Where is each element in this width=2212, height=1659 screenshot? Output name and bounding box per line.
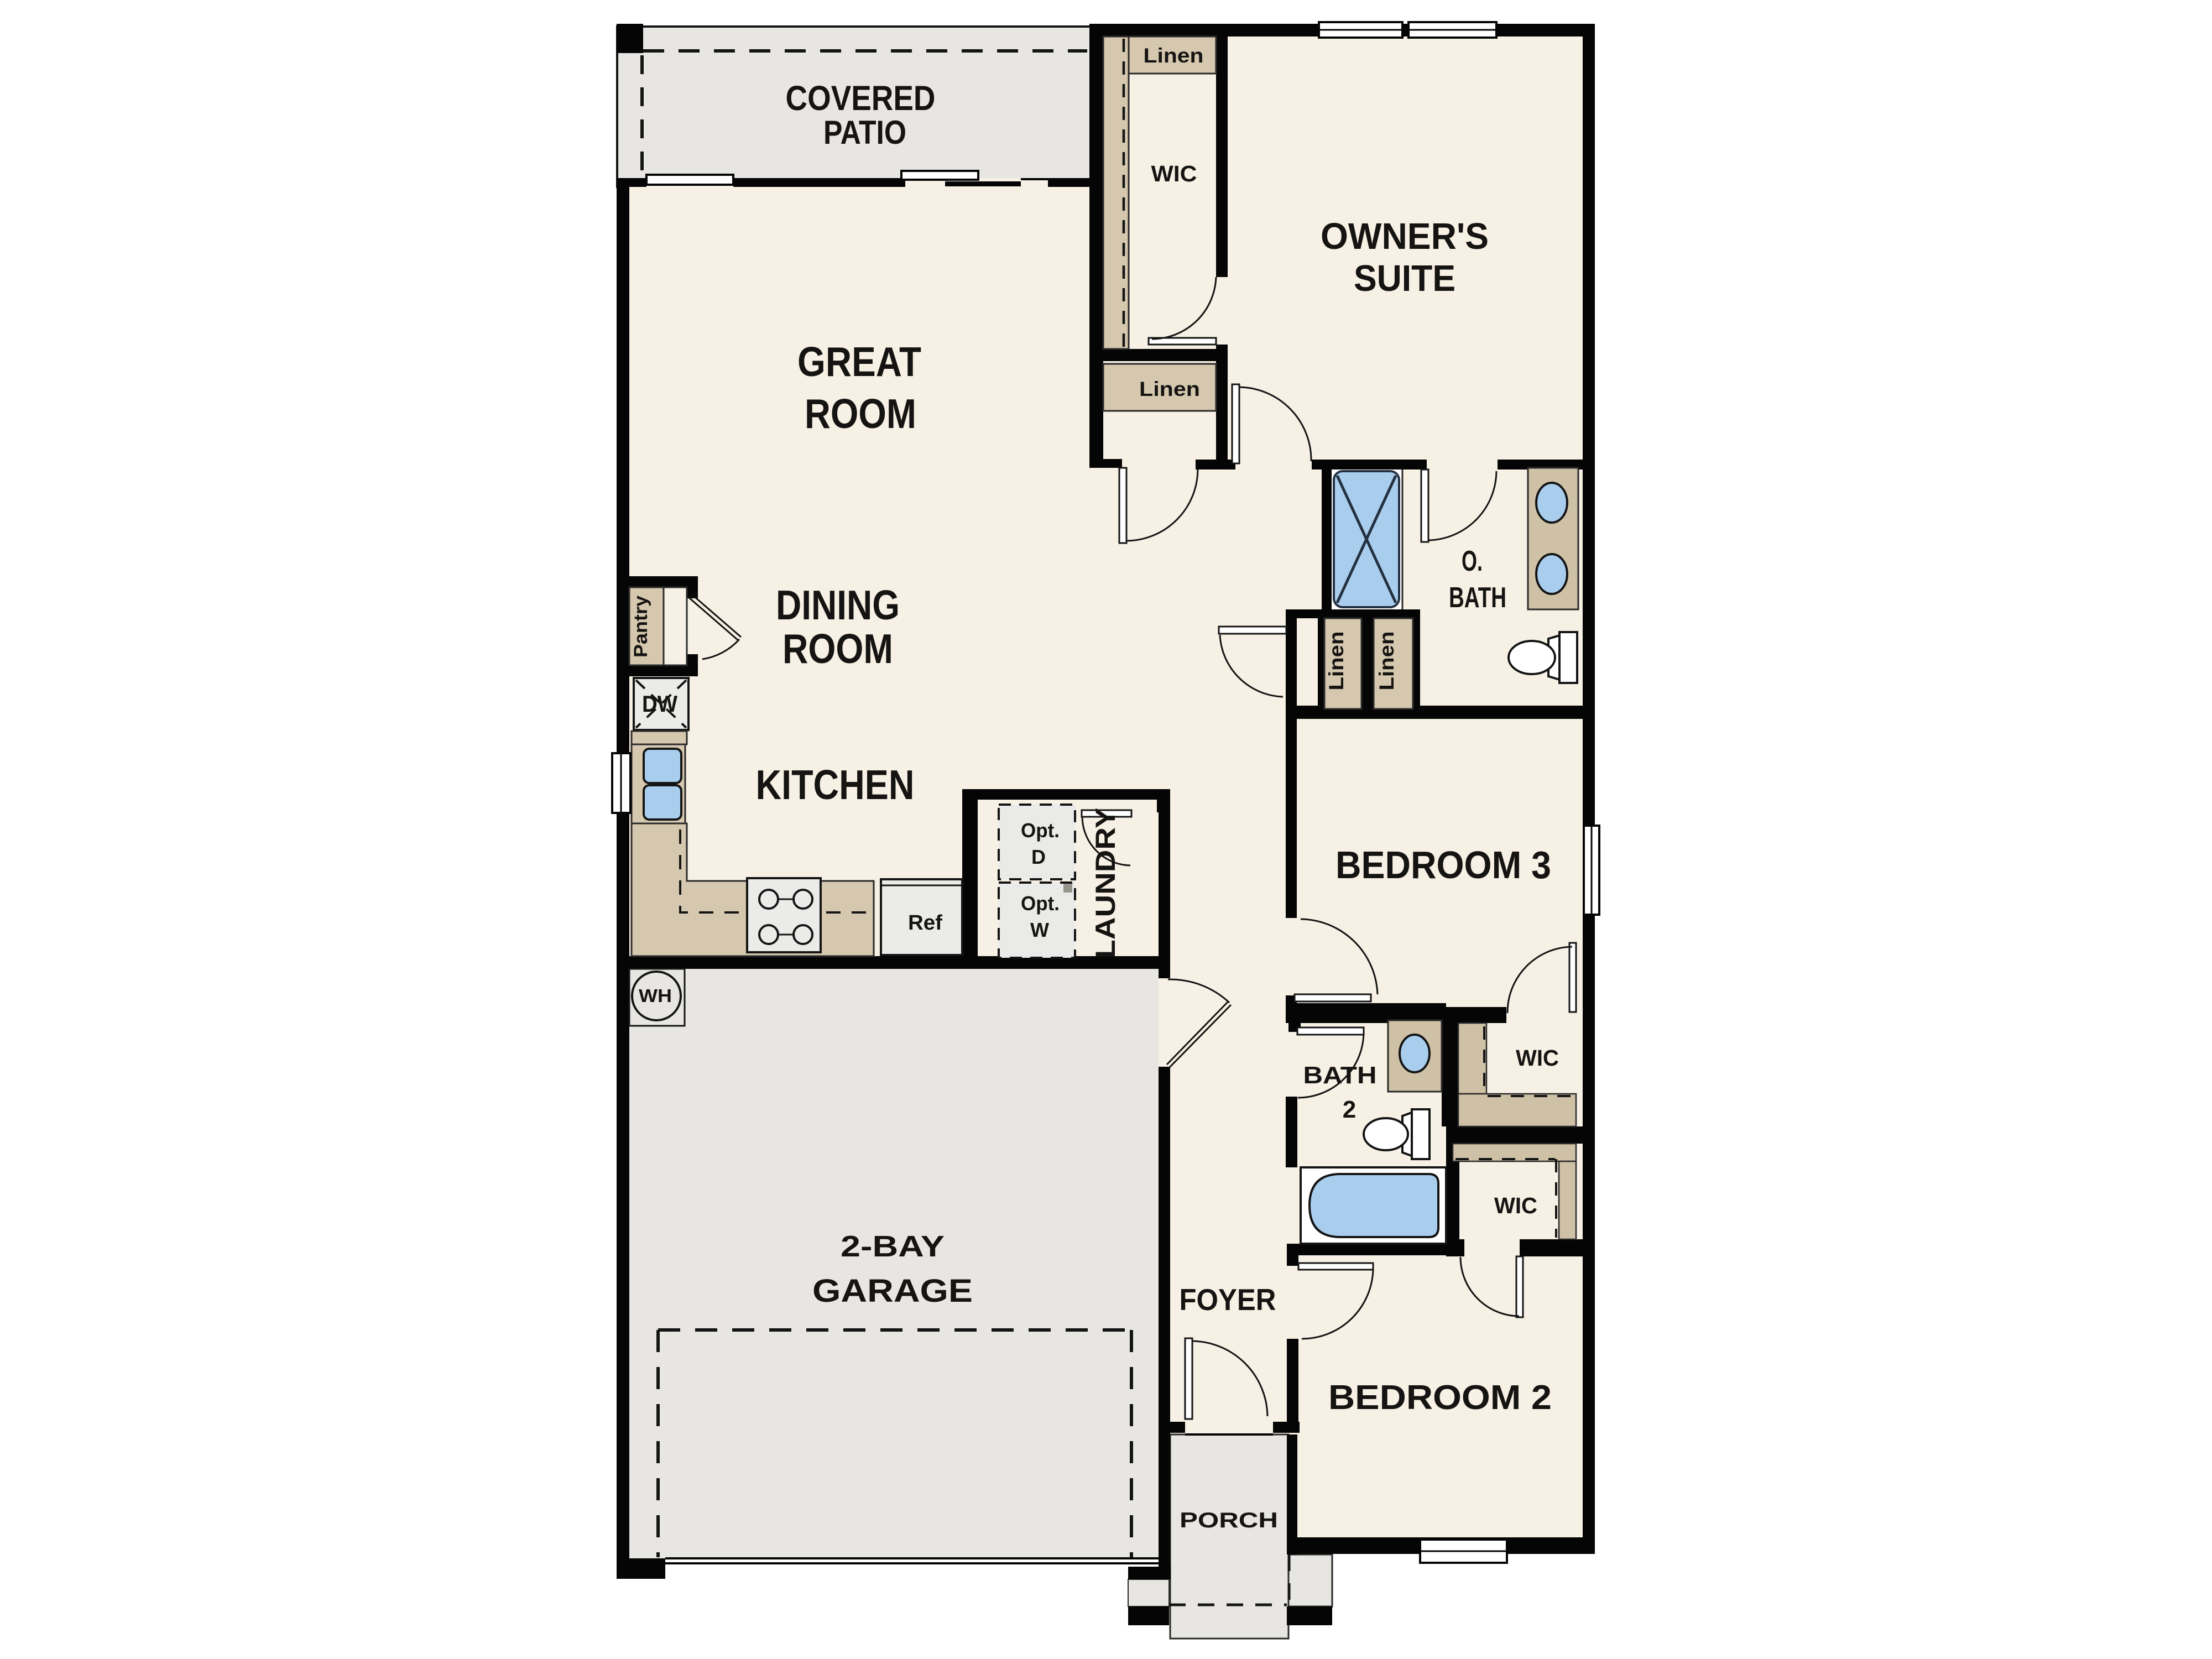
svg-text:BEDROOM 2: BEDROOM 2 xyxy=(1328,1379,1552,1417)
svg-text:O.: O. xyxy=(1462,545,1483,577)
svg-text:WIC: WIC xyxy=(1151,161,1197,186)
svg-text:WIC: WIC xyxy=(1494,1193,1537,1218)
svg-text:D: D xyxy=(1031,846,1046,868)
svg-text:Ref: Ref xyxy=(908,911,942,935)
svg-text:Opt.: Opt. xyxy=(1021,819,1060,842)
svg-text:Linen: Linen xyxy=(1139,378,1200,400)
svg-text:BEDROOM 3: BEDROOM 3 xyxy=(1335,843,1551,886)
svg-text:GARAGE: GARAGE xyxy=(812,1273,973,1309)
svg-text:BATH: BATH xyxy=(1303,1062,1377,1089)
svg-text:OWNER'S: OWNER'S xyxy=(1321,216,1489,257)
svg-text:PATIO: PATIO xyxy=(823,114,906,151)
svg-text:ROOM: ROOM xyxy=(805,390,916,437)
svg-text:WIC: WIC xyxy=(1516,1045,1559,1071)
svg-text:W: W xyxy=(1030,919,1049,941)
svg-text:2: 2 xyxy=(1343,1096,1356,1123)
svg-text:Linen: Linen xyxy=(1375,632,1398,691)
svg-text:BATH: BATH xyxy=(1449,582,1506,614)
svg-text:LAUNDRY: LAUNDRY xyxy=(1090,808,1121,959)
svg-text:FOYER: FOYER xyxy=(1180,1282,1276,1317)
svg-text:Linen: Linen xyxy=(1144,44,1204,67)
svg-text:DINING: DINING xyxy=(776,582,900,628)
svg-text:ROOM: ROOM xyxy=(782,625,893,672)
svg-text:Opt.: Opt. xyxy=(1021,892,1060,915)
svg-text:WH: WH xyxy=(639,985,672,1006)
svg-text:DW: DW xyxy=(642,691,677,717)
svg-text:SUITE: SUITE xyxy=(1354,258,1455,299)
svg-text:PORCH: PORCH xyxy=(1180,1509,1278,1532)
svg-text:2-BAY: 2-BAY xyxy=(841,1230,945,1263)
svg-text:KITCHEN: KITCHEN xyxy=(756,761,915,808)
svg-text:Pantry: Pantry xyxy=(630,596,651,658)
svg-text:GREAT: GREAT xyxy=(797,338,921,385)
svg-text:COVERED: COVERED xyxy=(786,79,936,118)
svg-text:Linen: Linen xyxy=(1325,632,1348,691)
